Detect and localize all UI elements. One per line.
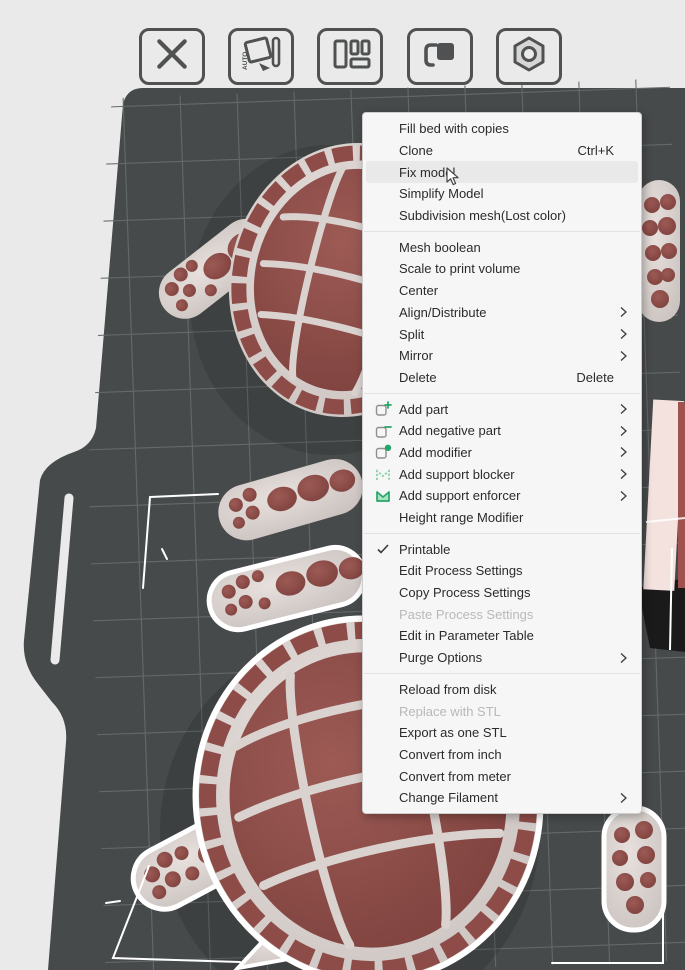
submenu-arrow-icon bbox=[620, 404, 627, 415]
assembly-view-button[interactable] bbox=[496, 28, 562, 85]
menu-item-reload-from-disk[interactable]: Reload from disk bbox=[366, 679, 638, 701]
menu-separator bbox=[364, 673, 640, 674]
add-negative-part-icon bbox=[373, 423, 393, 439]
checkmark-icon bbox=[373, 541, 393, 557]
menu-item-split[interactable]: Split bbox=[366, 323, 638, 345]
svg-text:AUTO: AUTO bbox=[242, 52, 249, 70]
submenu-arrow-icon bbox=[620, 469, 627, 480]
x-icon bbox=[153, 35, 191, 78]
submenu-arrow-icon bbox=[620, 425, 627, 436]
menu-item-fix-model[interactable]: Fix model bbox=[366, 161, 638, 183]
menu-separator bbox=[364, 533, 640, 534]
menu-item-height-range-modifier[interactable]: Height range Modifier bbox=[366, 507, 638, 529]
submenu-arrow-icon bbox=[620, 652, 627, 663]
submenu-arrow-icon bbox=[620, 490, 627, 501]
menu-item-clone[interactable]: Clone Ctrl+K bbox=[366, 140, 638, 162]
submenu-arrow-icon bbox=[620, 329, 627, 340]
menu-item-add-support-enforcer[interactable]: Add support enforcer bbox=[366, 485, 638, 507]
context-menu: Fill bed with copies Clone Ctrl+K Fix mo… bbox=[362, 112, 642, 814]
menu-item-add-negative-part[interactable]: Add negative part bbox=[366, 420, 638, 442]
submenu-arrow-icon bbox=[620, 792, 627, 803]
menu-item-add-support-blocker[interactable]: Add support blocker bbox=[366, 463, 638, 485]
auto-orient-icon: AUTO bbox=[239, 33, 283, 80]
menu-item-scale-to-print-volume[interactable]: Scale to print volume bbox=[366, 258, 638, 280]
menu-item-add-part[interactable]: Add part bbox=[366, 398, 638, 420]
menu-item-copy-process-settings[interactable]: Copy Process Settings bbox=[366, 582, 638, 604]
menu-item-paste-process-settings: Paste Process Settings bbox=[366, 603, 638, 625]
menu-item-simplify-model[interactable]: Simplify Model bbox=[366, 183, 638, 205]
auto-orient-button[interactable]: AUTO bbox=[228, 28, 294, 85]
arrange-button[interactable] bbox=[317, 28, 383, 85]
menu-item-fill-bed-with-copies[interactable]: Fill bed with copies bbox=[366, 118, 638, 140]
menu-item-change-filament[interactable]: Change Filament bbox=[366, 787, 638, 809]
split-to-objects-button[interactable] bbox=[407, 28, 473, 85]
submenu-arrow-icon bbox=[620, 307, 627, 318]
support-blocker-icon bbox=[373, 466, 393, 482]
menu-item-mirror[interactable]: Mirror bbox=[366, 345, 638, 367]
menu-item-purge-options[interactable]: Purge Options bbox=[366, 647, 638, 669]
menu-item-align-distribute[interactable]: Align/Distribute bbox=[366, 302, 638, 324]
menu-item-edit-in-parameter-table[interactable]: Edit in Parameter Table bbox=[366, 625, 638, 647]
menu-item-subdivision-mesh[interactable]: Subdivision mesh(Lost color) bbox=[366, 205, 638, 227]
add-part-icon bbox=[373, 401, 393, 417]
menu-item-edit-process-settings[interactable]: Edit Process Settings bbox=[366, 560, 638, 582]
menu-item-center[interactable]: Center bbox=[366, 280, 638, 302]
menu-item-convert-from-inch[interactable]: Convert from inch bbox=[366, 744, 638, 766]
delete-all-button[interactable] bbox=[139, 28, 205, 85]
menu-item-export-as-one-stl[interactable]: Export as one STL bbox=[366, 722, 638, 744]
submenu-arrow-icon bbox=[620, 350, 627, 361]
menu-item-add-modifier[interactable]: Add modifier bbox=[366, 442, 638, 464]
support-enforcer-icon bbox=[373, 488, 393, 504]
menu-separator bbox=[364, 231, 640, 232]
menu-item-printable[interactable]: Printable bbox=[366, 538, 638, 560]
split-icon bbox=[420, 34, 460, 79]
menu-item-delete[interactable]: Delete Delete bbox=[366, 367, 638, 389]
menu-item-mesh-boolean[interactable]: Mesh boolean bbox=[366, 236, 638, 258]
submenu-arrow-icon bbox=[620, 447, 627, 458]
hex-nut-icon bbox=[509, 34, 549, 79]
menu-item-convert-from-meter[interactable]: Convert from meter bbox=[366, 765, 638, 787]
menu-separator bbox=[364, 393, 640, 394]
menu-item-replace-with-stl: Replace with STL bbox=[366, 700, 638, 722]
mouse-cursor bbox=[445, 167, 461, 187]
arrange-icon bbox=[329, 34, 371, 79]
add-modifier-icon bbox=[373, 444, 393, 460]
